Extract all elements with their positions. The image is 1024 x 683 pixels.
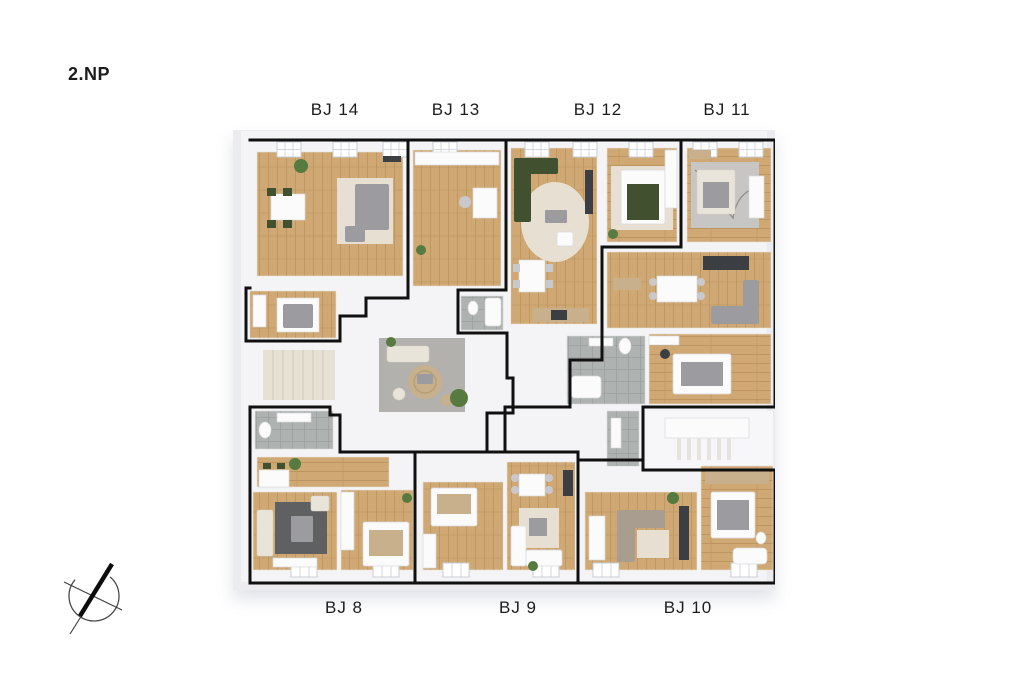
- unit-label-bj13: BJ 13: [432, 100, 480, 120]
- unit-label-bj11: BJ 11: [703, 100, 750, 120]
- floor-label: 2.NP: [68, 64, 110, 85]
- unit-label-bj9: BJ 9: [499, 598, 537, 618]
- north-arrow-icon: [58, 552, 130, 644]
- floor-plan-page: 2.NP BJ 14 BJ 13 BJ 12 BJ 11 BJ 8 BJ 9 B…: [0, 0, 1024, 683]
- floor-plan-rendering: [233, 130, 775, 590]
- unit-label-bj12: BJ 12: [574, 100, 622, 120]
- unit-label-bj14: BJ 14: [311, 100, 359, 120]
- unit-label-bj8: BJ 8: [325, 598, 363, 618]
- unit-label-bj10: BJ 10: [664, 598, 712, 618]
